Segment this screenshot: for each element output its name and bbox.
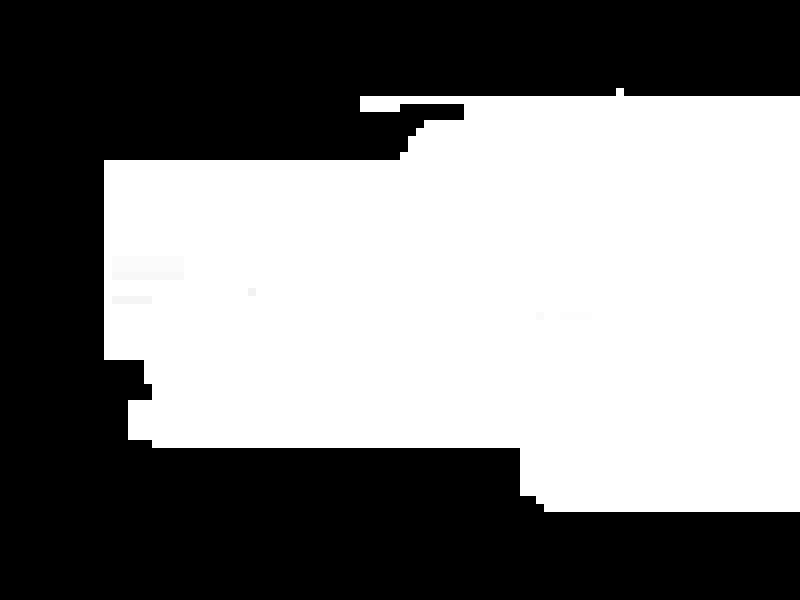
mask-tint-patch — [112, 256, 184, 272]
mask-white-region — [152, 384, 800, 400]
mask-tint-patch — [112, 272, 184, 280]
mask-white-region — [416, 128, 800, 136]
mask-white-region — [400, 152, 800, 160]
mask-tint-patch — [112, 296, 152, 304]
mask-white-region — [616, 88, 624, 96]
segmentation-mask-canvas — [0, 0, 800, 600]
mask-white-region — [128, 400, 800, 440]
mask-white-region — [536, 496, 800, 504]
mask-white-region — [360, 104, 400, 112]
mask-white-region — [408, 136, 800, 152]
mask-white-region — [104, 160, 800, 360]
mask-white-region — [520, 448, 800, 496]
mask-white-region — [360, 96, 800, 104]
mask-white-region — [152, 440, 800, 448]
mask-white-region — [544, 504, 800, 512]
mask-white-region — [464, 104, 800, 120]
mask-white-region — [144, 360, 800, 384]
mask-tint-patch — [248, 288, 256, 296]
mask-tint-patch — [560, 312, 592, 320]
mask-white-region — [424, 120, 800, 128]
mask-tint-patch — [536, 312, 544, 320]
